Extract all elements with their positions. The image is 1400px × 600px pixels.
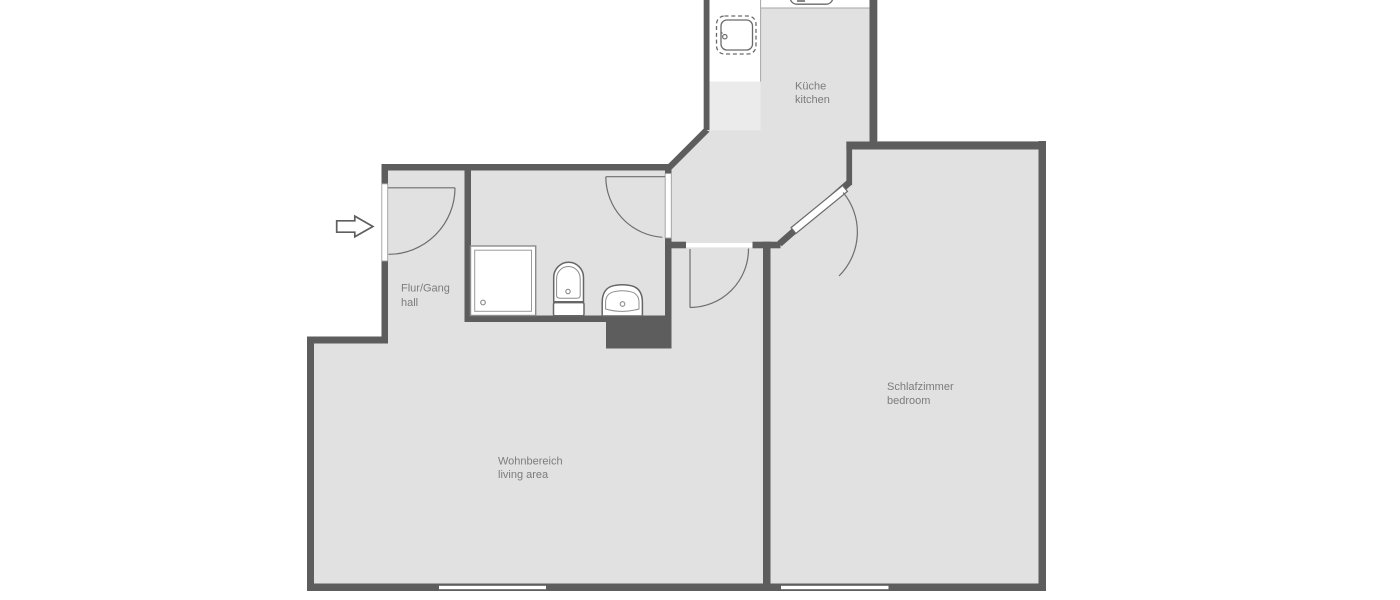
svg-text:Schlafzimmer: Schlafzimmer: [887, 381, 954, 393]
svg-text:Flur/Gang: Flur/Gang: [401, 283, 450, 295]
svg-text:Küche: Küche: [795, 81, 826, 93]
svg-text:bedroom: bedroom: [887, 395, 930, 407]
svg-text:living area: living area: [498, 469, 549, 481]
svg-text:kitchen: kitchen: [795, 94, 830, 106]
svg-text:Wohnbereich: Wohnbereich: [498, 456, 563, 468]
svg-text:hall: hall: [401, 297, 418, 309]
